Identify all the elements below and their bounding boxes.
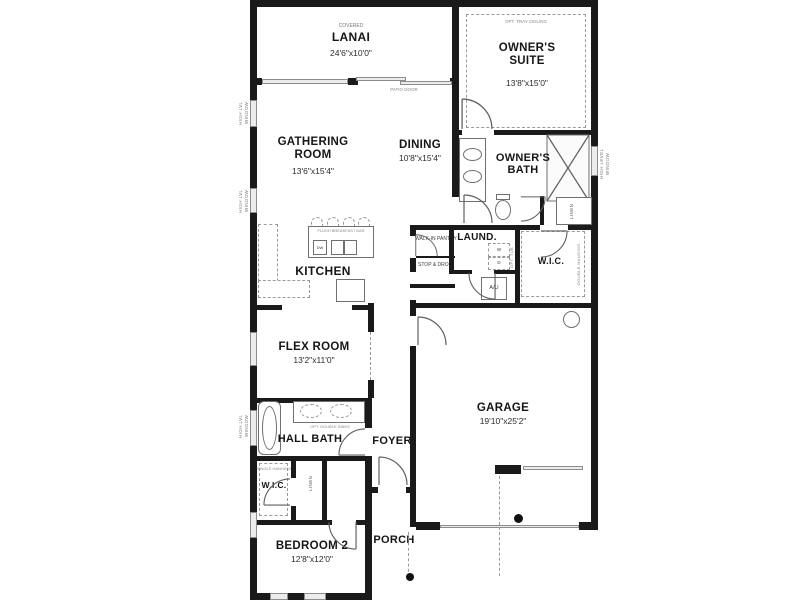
water-heater [563, 311, 580, 328]
tub-basin [262, 406, 277, 450]
wall [291, 461, 296, 478]
garage-door [440, 525, 579, 528]
wall [250, 0, 598, 7]
linen-label: LINEN [308, 468, 318, 498]
stop-drop-label: STOP & DROP [418, 262, 446, 268]
porch-edge [408, 532, 409, 577]
wall [250, 538, 257, 600]
dining-dims: 10'8"x15'4" [399, 153, 441, 163]
wall [591, 0, 598, 146]
wall [250, 78, 262, 85]
floor-plan: HIGH LVL WINDOW HIGH LVL WINDOW HIGH LVL… [0, 0, 800, 600]
breakfast-bar-label: FLUSH BREAKFAST BAR [317, 228, 364, 233]
room-label-owners-suite: OWNER'S SUITE [487, 42, 567, 68]
kitchen-sink [331, 240, 344, 255]
window [304, 593, 326, 600]
wall [368, 303, 374, 332]
window-note: HIGH LVL WINDOW [238, 404, 249, 448]
door-swing [415, 234, 438, 257]
wall [250, 0, 257, 100]
room-label-foyer: FOYER [372, 435, 411, 447]
window [250, 332, 257, 366]
wall [250, 305, 282, 310]
porch-column [406, 573, 414, 581]
wall [250, 366, 257, 410]
wall [250, 593, 270, 600]
window [262, 79, 348, 84]
flex-dims: 13'2"x11'0" [293, 355, 334, 365]
window [270, 593, 288, 600]
door-swing [461, 98, 493, 130]
sink [330, 404, 352, 418]
door-swing [378, 456, 408, 486]
door-swing [520, 196, 546, 222]
door-swing [463, 194, 493, 224]
wall [257, 520, 332, 525]
door-swing [338, 428, 366, 456]
window-note: HIGH LVL WINDOW [238, 181, 249, 221]
stool [358, 217, 370, 226]
window [250, 410, 257, 446]
wall [452, 85, 459, 197]
garage-dims: 19'10"x25'2" [480, 416, 527, 426]
opt-tub-label: OPT. TUB [509, 243, 516, 271]
tray-ceiling-label: OPT. TRAY CEILING [505, 19, 547, 24]
wall [368, 380, 374, 398]
door-swing [328, 521, 357, 550]
room-label-gathering: GATHERING ROOM [267, 136, 359, 162]
room-label-dining: DINING [399, 139, 441, 152]
wall [365, 487, 378, 493]
door-swing [468, 272, 496, 300]
porch-column [514, 514, 523, 523]
wall [288, 593, 304, 600]
sink [463, 148, 482, 161]
wall [250, 446, 257, 512]
room-label-kitchen: KITCHEN [295, 265, 350, 278]
window-note: HIGH LEVEL WINDOW [599, 142, 610, 186]
window [591, 146, 598, 176]
stool [327, 217, 339, 226]
wall [322, 461, 327, 520]
stool [311, 217, 323, 226]
range [336, 279, 365, 302]
window [250, 512, 257, 538]
patio-door-label: PATIO DOOR [390, 87, 418, 92]
room-label-garage: GARAGE [477, 402, 529, 415]
room-label-hall-bath: HALL BATH [278, 433, 343, 445]
room-label-laundry: LAUND. [457, 232, 497, 243]
wall [416, 522, 440, 530]
wall [495, 465, 521, 474]
dryer-label: D [497, 260, 500, 266]
wall [250, 127, 257, 188]
room-label-flex: FLEX ROOM [278, 341, 349, 354]
lanai-qualifier: COVERED [339, 23, 364, 29]
dishwasher-label: DW [317, 245, 324, 250]
wall [568, 225, 598, 230]
door-swing [263, 478, 291, 506]
owners-suite-dims: 13'8"x15'0" [506, 78, 548, 88]
single-hanging-label: SINGLE HANGING [257, 466, 291, 471]
door-swing [417, 316, 447, 346]
patio-door-panel [400, 81, 452, 85]
wall [579, 522, 598, 530]
sink [300, 404, 322, 418]
lanai-dims: 24'6"x10'0" [330, 48, 372, 58]
window [250, 100, 257, 127]
toilet [495, 200, 511, 220]
washer-label: W [497, 247, 501, 253]
kitchen-sink [344, 240, 357, 255]
garage-front-window [523, 466, 583, 470]
wall [291, 506, 296, 520]
wall [250, 213, 257, 332]
sink [463, 170, 482, 183]
patio-door-panel [356, 77, 406, 81]
wall [452, 0, 459, 85]
cased-opening [370, 332, 371, 380]
wall [406, 487, 416, 493]
double-hanging-label: DOUBLE HANGING [576, 236, 585, 292]
porch-edge [499, 476, 500, 576]
room-label-owners-bath: OWNER'S BATH [490, 152, 556, 177]
window [250, 188, 257, 213]
counter [258, 280, 310, 298]
window-note: HIGH LVL WINDOW [238, 93, 249, 133]
wall [449, 228, 454, 270]
gathering-dims: 13'6"x15'4" [292, 166, 334, 176]
wall [410, 258, 416, 272]
stool [343, 217, 355, 226]
door-swing [540, 230, 568, 258]
wall [356, 520, 372, 525]
wall [257, 456, 365, 461]
room-label-lanai: LANAI [332, 31, 370, 44]
wall [410, 284, 455, 288]
bedroom2-dims: 12'8"x12'0" [291, 554, 333, 564]
wall [365, 456, 372, 600]
wall [416, 303, 598, 308]
linen-label: LINEN [569, 200, 579, 223]
wall [452, 225, 540, 230]
